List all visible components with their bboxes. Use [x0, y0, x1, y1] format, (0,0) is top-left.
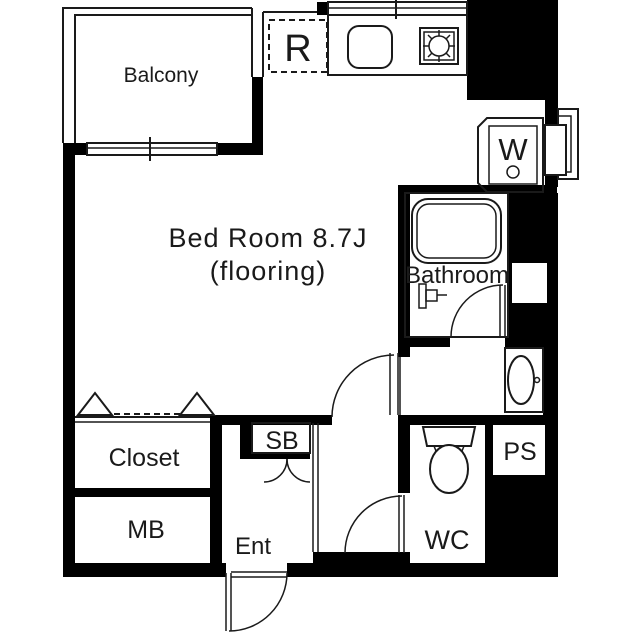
- wc-door-arc: [345, 495, 404, 553]
- label-shoe-box: SB: [265, 427, 298, 455]
- washbasin-icon: [400, 348, 543, 415]
- label-bathroom: Bathroom: [405, 262, 509, 289]
- bathroom-door-arc: [451, 285, 505, 337]
- entrance-door-arc: [226, 572, 287, 631]
- label-wc: WC: [425, 525, 470, 555]
- balcony-window-icon: [87, 137, 217, 161]
- exterior-notch: [512, 263, 547, 303]
- entrance-opening: [226, 563, 287, 577]
- kitchen-sink-icon: [348, 26, 392, 68]
- label-washer: W: [498, 132, 528, 167]
- label-refrigerator: R: [284, 28, 311, 70]
- label-balcony: Balcony: [124, 64, 199, 87]
- closet-folding-door-icon: [75, 393, 214, 422]
- kitchen-window-icon: [263, 0, 467, 19]
- shoebox-doors-icon: [264, 459, 310, 482]
- toilet-icon: [423, 427, 475, 493]
- floorplan: Balcony R W Bed Room 8.7J (flooring) Bat…: [0, 0, 640, 640]
- label-pipe-space: PS: [503, 438, 536, 466]
- label-closet: Closet: [109, 444, 180, 472]
- bedroom-door-arc: [332, 353, 398, 417]
- bathtub-icon: [412, 199, 501, 263]
- label-entrance: Ent: [235, 533, 271, 560]
- label-meter-box: MB: [127, 516, 165, 544]
- floorplan-svg: Balcony R W Bed Room 8.7J (flooring) Bat…: [0, 0, 640, 640]
- stove-icon: [420, 28, 458, 64]
- label-bedroom-line1: Bed Room 8.7J: [168, 223, 367, 253]
- hall-step-line: [313, 423, 318, 552]
- label-bedroom-line2: (flooring): [210, 256, 327, 286]
